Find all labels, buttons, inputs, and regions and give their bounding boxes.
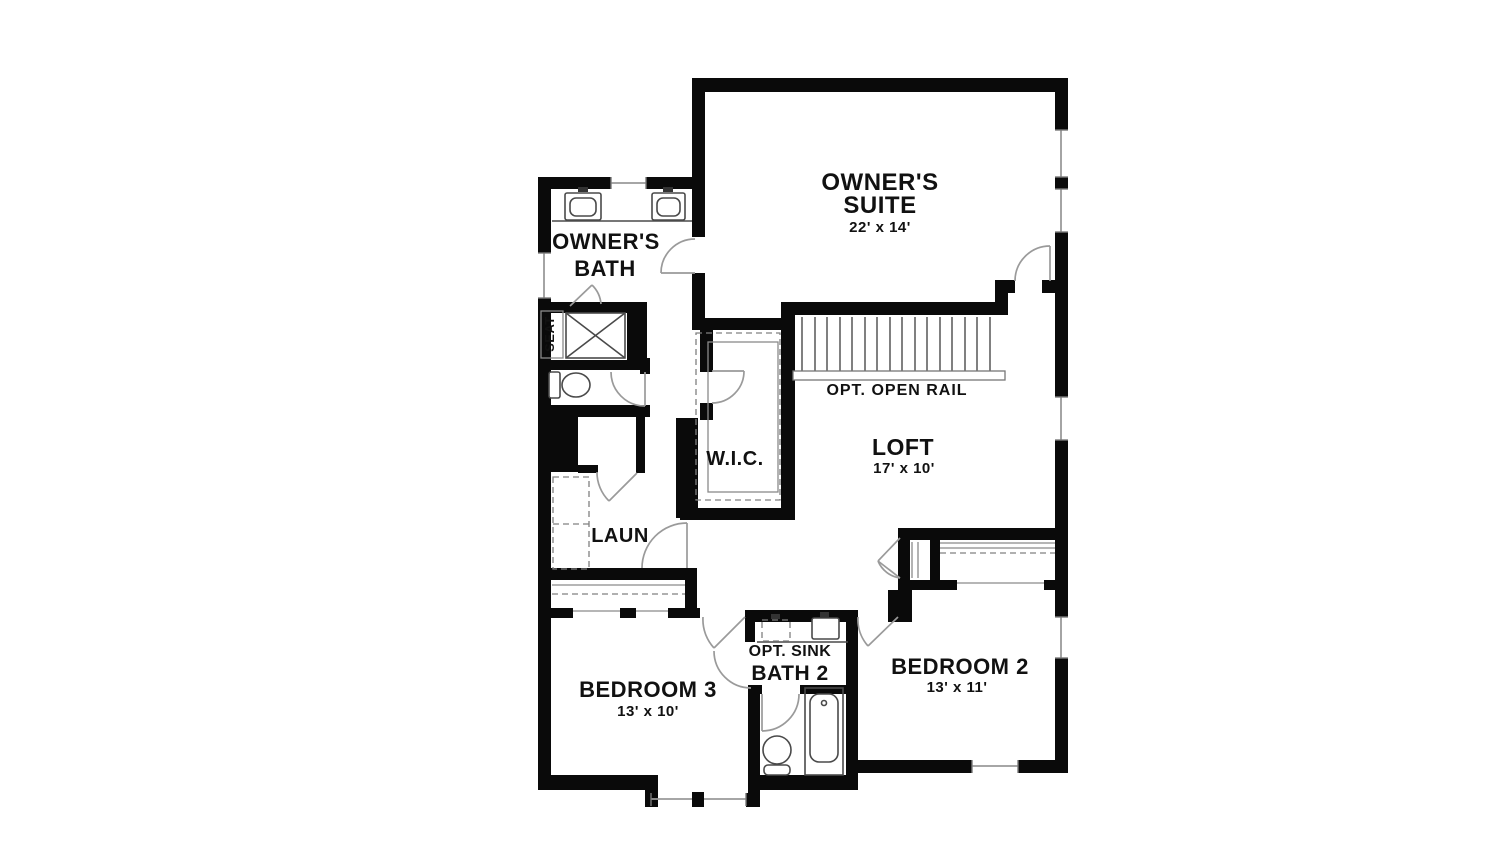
open-rail-label: OPT. OPEN RAIL [826,382,967,399]
shower-seat-label: SEAT [542,316,557,352]
toilet-fixture [763,736,791,775]
bedroom2-dimensions: 13' x 11' [927,679,988,696]
faucet-icon [663,187,673,192]
bath2-label: BATH 2 [751,662,828,685]
wic-label: W.I.C. [706,448,763,470]
loft-dimensions: 17' x 10' [873,460,935,477]
owners-suite-dimensions: 22' x 14' [849,219,911,236]
owners-bath-label: OWNER'S [552,229,660,254]
bedroom2-closet [940,543,1055,583]
bath-sink-fixture [652,187,685,220]
stair-rail [793,371,1005,380]
wic-shelving [696,333,780,500]
bedroom2-label: BEDROOM 2 [891,654,1029,679]
bath-sink-fixture [565,187,601,220]
bedroom3-dimensions: 13' x 10' [617,703,679,720]
faucet-icon [771,614,780,619]
laundry-appliances [553,477,589,569]
linen-closet-shelves [912,542,918,578]
toilet-fixture [549,372,590,398]
loft-label: LOFT [872,434,934,460]
bath2-opt-sink-label: OPT. SINK [749,643,832,660]
faucet-icon [578,187,588,192]
bathtub-fixture [805,688,843,775]
faucet-icon [820,612,829,617]
laundry-label: LAUN [591,525,649,547]
stair-treads [802,317,990,371]
stairs [793,317,1005,380]
owners-bath-label: BATH [574,256,635,281]
floor-plan-page: OWNER'S SUITE 22' x 14' OWNER'S BATH SEA… [0,0,1500,843]
owners-suite-label: SUITE [843,192,916,219]
bedroom3-label: BEDROOM 3 [579,677,717,702]
floor-plan-drawing: OWNER'S SUITE 22' x 14' OWNER'S BATH SEA… [0,0,1500,843]
bedroom3-closet [552,585,685,611]
